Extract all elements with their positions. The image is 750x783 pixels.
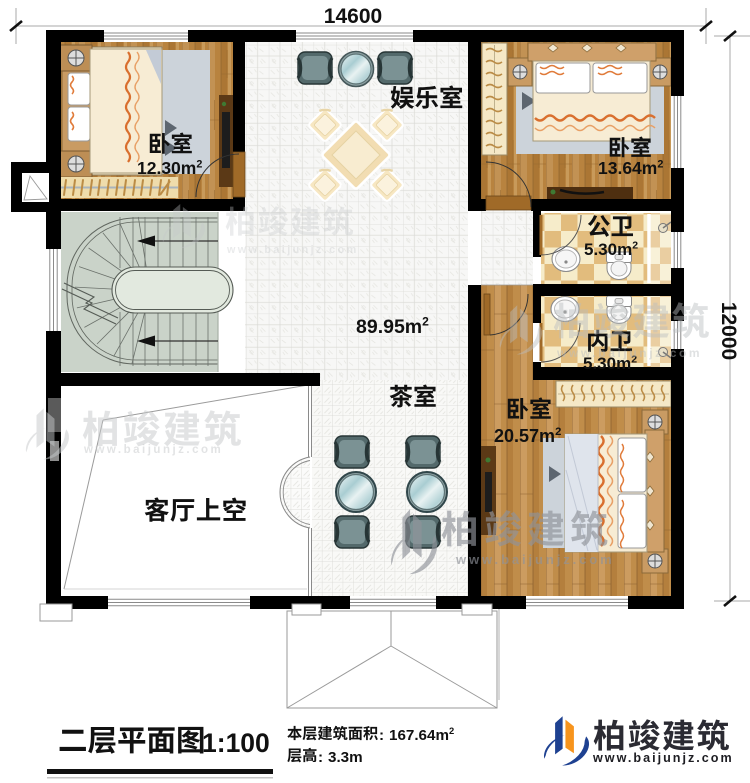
svg-text:www.baijunjz.com: www.baijunjz.com [226, 244, 359, 256]
svg-text:20.57m2: 20.57m2 [494, 426, 561, 446]
svg-text:167.64m2: 167.64m2 [389, 725, 454, 744]
svg-text:5.30m2: 5.30m2 [584, 240, 638, 260]
svg-text:www.baijunjz.com: www.baijunjz.com [592, 751, 734, 765]
svg-text:12.30m2: 12.30m2 [137, 158, 202, 178]
svg-text:89.95m2: 89.95m2 [356, 315, 429, 338]
svg-text:www.baijunjz.com: www.baijunjz.com [83, 444, 223, 456]
svg-text:12000: 12000 [717, 302, 740, 360]
svg-text::: : [318, 749, 323, 766]
svg-text:www.baijunjz.com: www.baijunjz.com [455, 552, 615, 567]
svg-text:3.3m: 3.3m [328, 749, 363, 766]
svg-text:1:100: 1:100 [202, 728, 270, 758]
svg-text:www.baijunjz.com: www.baijunjz.com [556, 346, 702, 360]
svg-text::: : [379, 727, 384, 744]
svg-text:14600: 14600 [324, 5, 382, 28]
svg-text:13.64m2: 13.64m2 [598, 158, 663, 178]
